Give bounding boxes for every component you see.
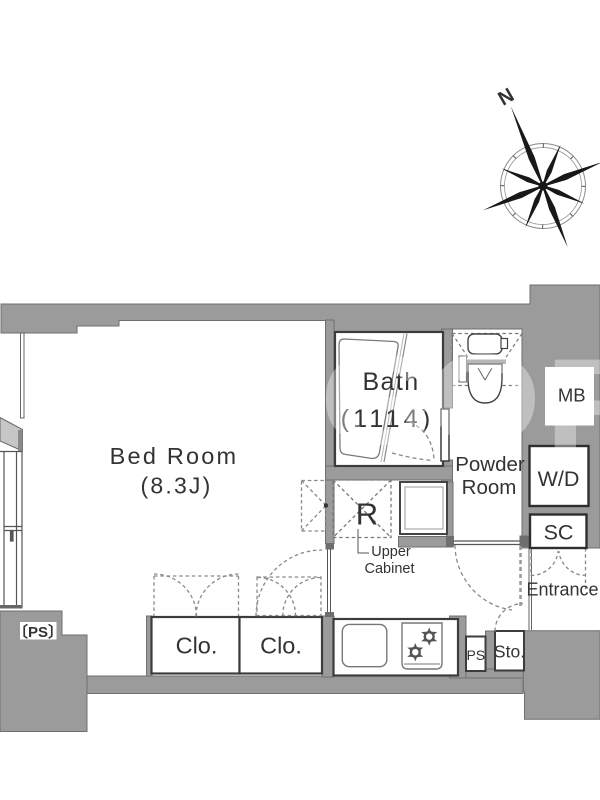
svg-text:Room: Room	[462, 476, 517, 499]
svg-text:Clo.: Clo.	[260, 633, 302, 659]
svg-text:O: O	[427, 327, 541, 472]
svg-text:R: R	[356, 497, 378, 532]
svg-text:SC: SC	[544, 521, 574, 545]
svg-text:(8.3J): (8.3J)	[141, 473, 213, 499]
svg-text:PS: PS	[466, 647, 485, 663]
svg-text:Cabinet: Cabinet	[365, 561, 415, 577]
svg-text:MB: MB	[558, 385, 586, 406]
svg-text:Entrance: Entrance	[527, 580, 599, 600]
svg-text:Sto.: Sto.	[494, 642, 525, 662]
svg-text:Bed Room: Bed Room	[110, 443, 239, 469]
svg-text:Clo.: Clo.	[176, 633, 218, 659]
svg-text:〔PS〕: 〔PS〕	[13, 623, 63, 641]
svg-text:G: G	[320, 327, 434, 472]
svg-text:Upper: Upper	[371, 544, 411, 560]
